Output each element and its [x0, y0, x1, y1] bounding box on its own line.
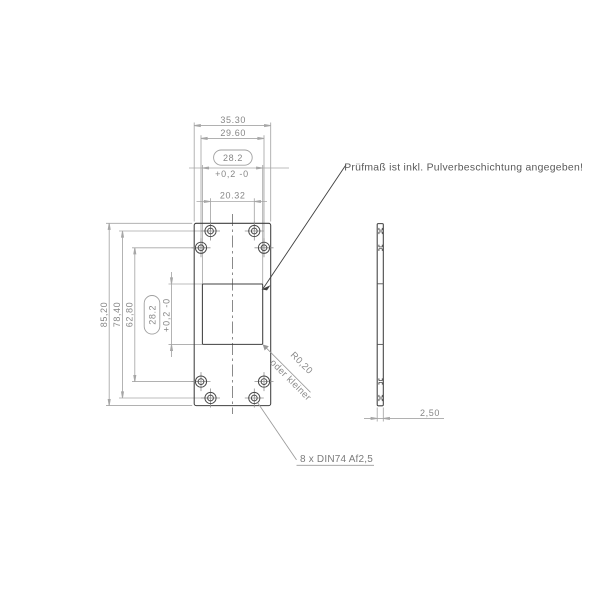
svg-text:78,40: 78,40	[112, 302, 122, 328]
svg-text:62,80: 62,80	[125, 302, 135, 328]
svg-text:+0,2 -0: +0,2 -0	[162, 298, 172, 332]
svg-text:85,20: 85,20	[99, 302, 109, 328]
svg-text:28.2: 28.2	[147, 305, 157, 325]
svg-text:28.2: 28.2	[223, 153, 243, 163]
svg-text:35.30: 35.30	[220, 115, 246, 125]
svg-text:8 x DIN74 Af2,5: 8 x DIN74 Af2,5	[300, 454, 373, 465]
svg-text:20.32: 20.32	[220, 191, 246, 201]
svg-text:2,50: 2,50	[420, 408, 440, 418]
svg-text:Prüfmaß ist inkl. Pulverbeschi: Prüfmaß ist inkl. Pulverbeschichtung ang…	[344, 162, 583, 173]
svg-text:29.60: 29.60	[220, 128, 246, 138]
svg-text:+0,2 -0: +0,2 -0	[215, 169, 249, 179]
